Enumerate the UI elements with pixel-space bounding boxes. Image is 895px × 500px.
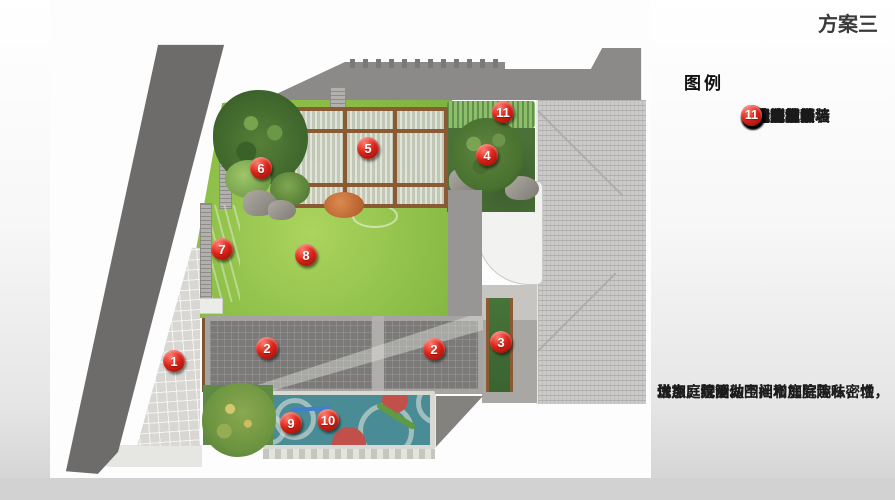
pergola-beam	[343, 111, 347, 204]
shaped-tree	[452, 118, 524, 192]
notes-line: 进家庭氛围。	[657, 379, 744, 409]
pergola-beam	[295, 129, 444, 133]
pergola-beam	[393, 111, 397, 204]
rubber-playground	[268, 395, 430, 445]
footer-band	[0, 478, 895, 500]
side-paving	[448, 190, 482, 316]
fence	[202, 318, 205, 392]
pergola-beam	[295, 183, 444, 187]
page-title: 方案三	[758, 12, 878, 38]
legend-header: 图例	[684, 72, 764, 96]
leisure-pavilion	[291, 107, 448, 208]
water-feature-wall	[200, 203, 212, 303]
water-feature	[212, 205, 240, 302]
house-roof	[536, 100, 646, 404]
roof-ridge	[537, 273, 616, 352]
notes: 优点：绿篱做围挡增加庭院私密性， 增加庭院活动空间和庭院趣味，增 进家庭氛围。	[657, 379, 889, 474]
roof-ridge	[537, 110, 623, 196]
slide: 12234567891011 方案三 图例 1出入口铺装 2庭院铺装 3特色景墙…	[0, 0, 895, 500]
play-arc	[416, 395, 430, 425]
rock	[268, 200, 296, 220]
feature-wall	[486, 298, 513, 392]
paver-edging	[263, 449, 435, 459]
legend: 1出入口铺装 2庭院铺装 3特色景墙 4造型树 5休闲廊亭 6置石组景 7特色水…	[741, 103, 895, 381]
accent-plant	[324, 192, 364, 218]
wall-fence-ticks	[350, 59, 500, 68]
step	[197, 298, 223, 314]
garden-wall	[330, 86, 346, 108]
legend-number-badge: 11	[741, 105, 762, 126]
